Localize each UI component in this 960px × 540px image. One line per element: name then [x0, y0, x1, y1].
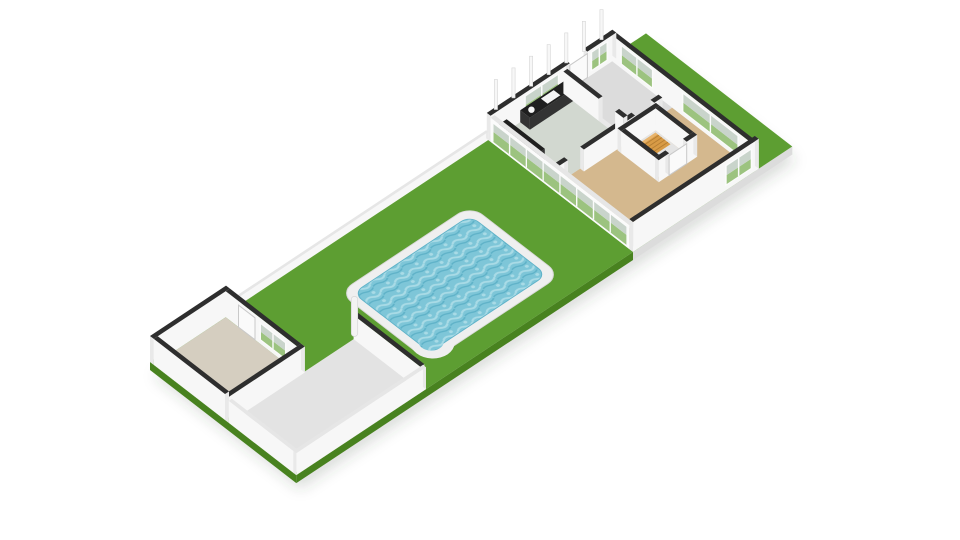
- patio-post: [351, 296, 357, 336]
- entry-window-mullion: [599, 47, 601, 65]
- upper-floor-stud: [494, 80, 497, 110]
- front-window-1-mullion: [636, 58, 637, 76]
- stair-box-wall-nw-end: [618, 128, 622, 153]
- upper-floor-stud: [547, 45, 550, 75]
- back-glazing-mullion: [492, 122, 493, 142]
- upper-floor-stud: [530, 56, 533, 86]
- floorplan-3d-view: [0, 0, 960, 540]
- front-window-2-mullion: [710, 115, 711, 133]
- back-glazing-mullion: [593, 200, 594, 220]
- shed-window-mullion: [272, 333, 273, 349]
- floorplan-canvas: [0, 0, 960, 540]
- back-glazing-mullion: [526, 148, 527, 168]
- stair-box-wall-se-end: [655, 157, 659, 182]
- kitchen-hall-divider-end: [599, 96, 603, 121]
- back-glazing-mullion: [509, 135, 510, 155]
- back-glazing-mullion: [610, 213, 611, 233]
- kitchen-hob: [528, 106, 534, 112]
- back-glazing-mullion: [543, 161, 544, 181]
- back-glazing-mullion: [576, 187, 577, 207]
- shed-wall-nw-end: [150, 336, 154, 365]
- side-window-mullion: [738, 158, 740, 177]
- upper-floor-stud: [600, 10, 603, 40]
- back-glazing-mullion: [626, 226, 627, 246]
- back-glazed-wall-end: [629, 222, 633, 249]
- upper-floor-stud: [512, 68, 515, 98]
- shed-wall-sw-end: [225, 391, 229, 420]
- back-glazing-mullion: [559, 174, 560, 194]
- upper-floor-stud: [582, 21, 585, 51]
- upper-floor-stud: [565, 33, 568, 63]
- boundary-wall-se-end: [293, 451, 296, 475]
- interior-wall-end: [580, 147, 584, 172]
